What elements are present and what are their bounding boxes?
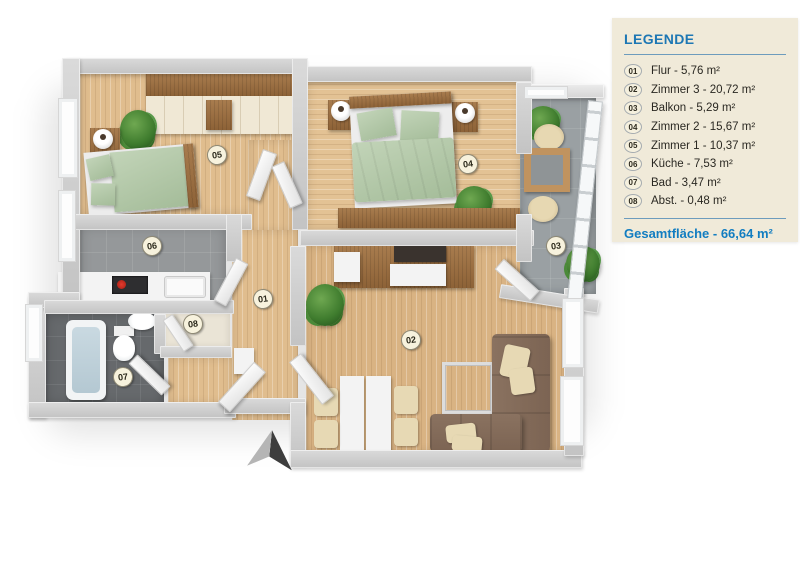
room-number-badge: 01: [252, 288, 275, 311]
legend-room-label: Küche - 7,53 m²: [651, 158, 733, 170]
room-number-badge: 03: [545, 235, 568, 258]
legend-room-number: 02: [624, 83, 642, 97]
legend-row: 08 Abst. - 0,48 m²: [624, 192, 786, 211]
legend-room-number: 01: [624, 64, 642, 78]
room-number-badge: 07: [112, 366, 135, 389]
room-number: 04: [462, 158, 473, 169]
room-number-badge: 04: [457, 153, 480, 176]
legend-row: 01 Flur - 5,76 m²: [624, 62, 786, 81]
legend-row: 05 Zimmer 1 - 10,37 m²: [624, 136, 786, 155]
room-number: 03: [550, 240, 561, 251]
legend-room-label: Zimmer 1 - 10,37 m²: [651, 140, 755, 152]
legend-row: 04 Zimmer 2 - 15,67 m²: [624, 118, 786, 137]
legend-items: 01 Flur - 5,76 m² 02 Zimmer 3 - 20,72 m²…: [624, 62, 786, 211]
room-number: 07: [117, 371, 128, 382]
room-number-badge: 08: [182, 313, 205, 336]
legend-room-label: Abst. - 0,48 m²: [651, 195, 726, 207]
legend-row: 02 Zimmer 3 - 20,72 m²: [624, 81, 786, 100]
room-number-badge: 05: [206, 144, 229, 167]
floorplan-page: 05 04 03 06 01 08 02: [0, 0, 800, 565]
room-number: 08: [187, 318, 198, 329]
legend-divider-bottom: [624, 218, 786, 219]
legend-title: LEGENDE: [624, 31, 786, 47]
legend-row: 06 Küche - 7,53 m²: [624, 155, 786, 174]
legend-room-number: 03: [624, 101, 642, 115]
legend-divider-top: [624, 54, 786, 55]
legend-room-number: 07: [624, 176, 642, 190]
legend-row: 03 Balkon - 5,29 m²: [624, 99, 786, 118]
legend-total-area: Gesamtfläche - 66,64 m²: [624, 226, 786, 241]
legend-room-number: 04: [624, 120, 642, 134]
room-number: 02: [405, 334, 416, 345]
room-number: 06: [146, 240, 157, 251]
room-number: 05: [211, 149, 222, 160]
legend-row: 07 Bad - 3,47 m²: [624, 174, 786, 193]
legend-room-label: Zimmer 3 - 20,72 m²: [651, 84, 755, 96]
legend-room-label: Balkon - 5,29 m²: [651, 102, 735, 114]
room-number: 01: [257, 293, 268, 304]
legend-room-number: 08: [624, 194, 642, 208]
legend-room-label: Bad - 3,47 m²: [651, 177, 721, 189]
room-number-badge: 02: [400, 329, 423, 352]
room-number-badge: 06: [141, 235, 164, 258]
legend-panel: LEGENDE 01 Flur - 5,76 m² 02 Zimmer 3 - …: [612, 18, 798, 242]
legend-room-label: Flur - 5,76 m²: [651, 65, 720, 77]
legend-room-number: 06: [624, 157, 642, 171]
legend-room-label: Zimmer 2 - 15,67 m²: [651, 121, 755, 133]
legend-room-number: 05: [624, 139, 642, 153]
